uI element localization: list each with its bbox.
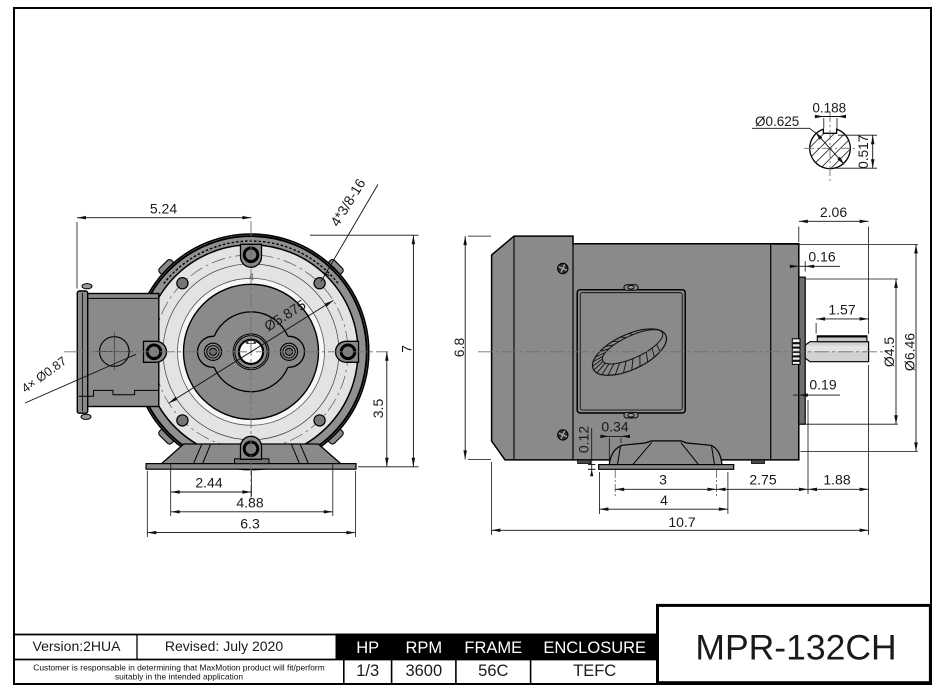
- svg-text:Ø4.5: Ø4.5: [881, 337, 897, 368]
- svg-text:3: 3: [659, 471, 667, 487]
- svg-text:1.88: 1.88: [823, 471, 850, 487]
- svg-text:1.57: 1.57: [828, 302, 855, 318]
- svg-text:suitably in the intended appli: suitably in the intended application: [115, 671, 243, 681]
- svg-text:Ø6.46: Ø6.46: [901, 333, 917, 371]
- svg-text:0.12: 0.12: [576, 426, 592, 453]
- svg-text:2.44: 2.44: [195, 475, 222, 491]
- svg-text:3.5: 3.5: [370, 399, 386, 419]
- svg-text:ENCLOSURE: ENCLOSURE: [543, 639, 646, 657]
- svg-text:HP: HP: [356, 639, 379, 657]
- svg-text:FRAME: FRAME: [464, 639, 522, 657]
- svg-text:2.75: 2.75: [749, 471, 776, 487]
- svg-text:0.188: 0.188: [812, 101, 846, 116]
- svg-text:RPM: RPM: [405, 639, 442, 657]
- svg-text:0.517: 0.517: [856, 135, 871, 169]
- svg-text:4.88: 4.88: [236, 495, 263, 511]
- svg-text:MPR-132CH: MPR-132CH: [695, 627, 896, 667]
- svg-text:4: 4: [249, 273, 255, 284]
- svg-text:Revised: July 2020: Revised: July 2020: [165, 638, 284, 654]
- svg-text:5.24: 5.24: [150, 201, 177, 217]
- svg-text:0.16: 0.16: [808, 249, 835, 265]
- svg-text:0.19: 0.19: [809, 377, 836, 393]
- svg-text:Version:2HUA: Version:2HUA: [33, 638, 122, 654]
- svg-text:6.3: 6.3: [240, 515, 260, 531]
- svg-text:10.7: 10.7: [668, 514, 695, 530]
- svg-text:3600: 3600: [405, 662, 442, 680]
- svg-text:4: 4: [660, 492, 668, 508]
- svg-text:0.34: 0.34: [601, 419, 628, 435]
- svg-text:Ø0.625: Ø0.625: [755, 114, 799, 129]
- svg-text:1/3: 1/3: [356, 662, 379, 680]
- svg-text:6.8: 6.8: [451, 338, 467, 358]
- svg-text:7: 7: [399, 345, 415, 353]
- svg-text:2.06: 2.06: [820, 204, 847, 220]
- svg-text:56C: 56C: [478, 662, 508, 680]
- svg-text:TEFC: TEFC: [573, 662, 616, 680]
